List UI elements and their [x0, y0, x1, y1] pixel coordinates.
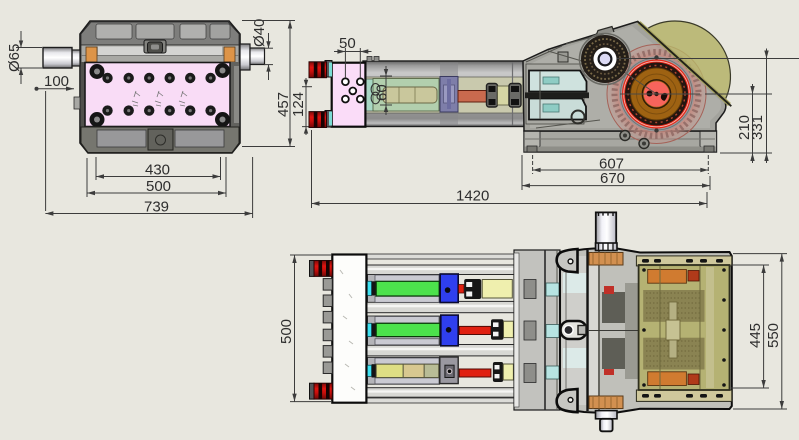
svg-text:1420: 1420	[456, 188, 489, 205]
svg-text:331: 331	[749, 115, 766, 140]
svg-text:550: 550	[765, 323, 782, 348]
svg-text:430: 430	[145, 162, 170, 179]
svg-text:Ø65: Ø65	[6, 44, 23, 72]
svg-text:500: 500	[278, 319, 295, 344]
svg-text:500: 500	[146, 178, 171, 195]
svg-text:445: 445	[747, 323, 764, 348]
svg-text:739: 739	[144, 199, 169, 216]
svg-text:124: 124	[290, 92, 307, 117]
svg-text:100: 100	[44, 73, 69, 90]
svg-text:60: 60	[374, 84, 391, 101]
svg-text:670: 670	[600, 170, 625, 187]
svg-text:50: 50	[339, 35, 356, 52]
svg-text:Ø40: Ø40	[251, 19, 268, 47]
